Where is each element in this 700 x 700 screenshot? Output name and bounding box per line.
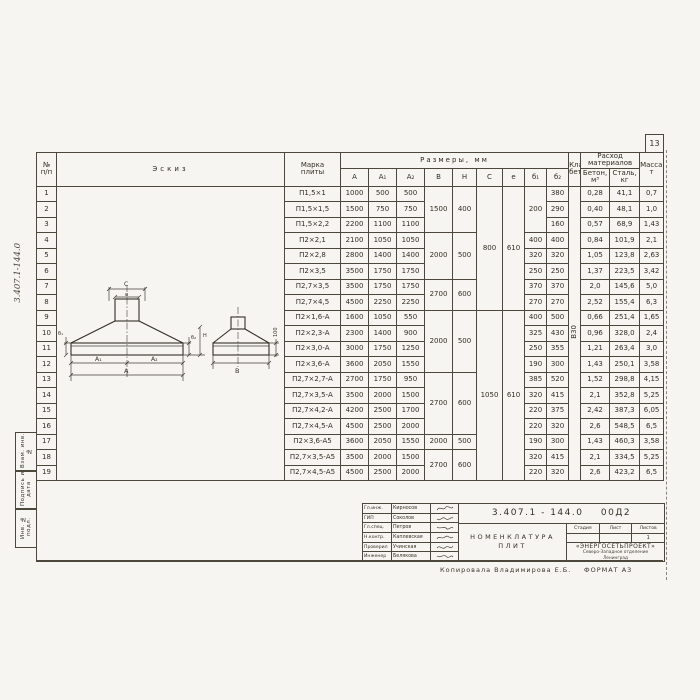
cell: 500: [453, 434, 477, 450]
cell: 1,21: [581, 341, 610, 357]
cell: П2,7×3,5: [285, 279, 341, 295]
header-row-number: №п/п: [37, 153, 57, 187]
cell: 4500: [341, 465, 369, 481]
cell: 2,0: [581, 279, 610, 295]
cell: 9: [37, 310, 57, 326]
cell: 1,52: [581, 372, 610, 388]
header-col-b2: б₂: [547, 168, 569, 186]
cell: 2250: [397, 295, 425, 311]
cell: 1500: [425, 186, 453, 233]
cell: 1400: [369, 248, 397, 264]
cell: 1750: [397, 264, 425, 280]
margin-doc-number-text: 3.407.1-144.0: [13, 243, 23, 303]
cell: П2,7×3,5-А5: [285, 450, 341, 466]
cell: 1500: [397, 388, 425, 404]
cell: 1,05: [581, 248, 610, 264]
cell: 1,43: [640, 217, 664, 233]
cell: 5,0: [640, 279, 664, 295]
cell: П2,7×4,2-А: [285, 403, 341, 419]
cell: 17: [37, 434, 57, 450]
signature-name: Соколов: [392, 514, 431, 523]
cell: 3,0: [640, 341, 664, 357]
sheet-label: Лист: [600, 524, 633, 533]
stamp-vzam-inv-label: Взам. инв. №: [20, 433, 32, 469]
cell: 500: [453, 233, 477, 280]
cell: 423,2: [610, 465, 640, 481]
cell: 370: [547, 279, 569, 295]
cell: 6,5: [640, 419, 664, 435]
stamp-inv-podl: Инв. № подл.: [15, 508, 37, 548]
sketch-cell: C e б₂ Н б₁ А₁ А₂ А В: [57, 186, 285, 481]
drawing-title: НОМЕНКЛАТУРА ПЛИТ: [459, 524, 567, 561]
cell: 3000: [341, 341, 369, 357]
cell: 300: [547, 357, 569, 373]
concrete-class-cell: В30: [569, 186, 581, 481]
cell: 6: [37, 264, 57, 280]
cell: 3500: [341, 388, 369, 404]
cell: 375: [547, 403, 569, 419]
cell: 352,8: [610, 388, 640, 404]
frame-right-line: [666, 150, 667, 580]
signature-row: ГИПСоколов: [363, 514, 458, 524]
cell: 223,5: [610, 264, 640, 280]
cell: 298,8: [610, 372, 640, 388]
cell: 3,42: [640, 264, 664, 280]
cell: 2,42: [581, 403, 610, 419]
title-block: Гл.инж.Кирносов ГИПСоколов Гл.спец.Петро…: [362, 503, 665, 562]
cell: 500: [547, 310, 569, 326]
cell: 355: [547, 341, 569, 357]
drawing-title-line2: ПЛИТ: [498, 542, 527, 552]
cell: 4: [37, 233, 57, 249]
cell: 2,1: [581, 450, 610, 466]
cell: 2500: [369, 403, 397, 419]
cell: 1,65: [640, 310, 664, 326]
cell: 1100: [369, 217, 397, 233]
cell: 1750: [369, 372, 397, 388]
cell: 430: [547, 326, 569, 342]
table-row: 1 C e б₂ Н б₁ А₁ А₂ А: [37, 186, 664, 202]
cell: 2,1: [581, 388, 610, 404]
cell: 15: [37, 403, 57, 419]
cell: 4200: [341, 403, 369, 419]
cell: 2700: [425, 372, 453, 434]
cell: П2×3,0-А: [285, 341, 341, 357]
cell: П2×3,6-А: [285, 357, 341, 373]
cell: 3,58: [640, 357, 664, 373]
cell: 415: [547, 450, 569, 466]
header-sketch: Эскиз: [57, 153, 285, 187]
page-number: 13: [645, 134, 664, 153]
cell: 370: [525, 279, 547, 295]
signature-scribble: [431, 543, 458, 552]
cell: 2,52: [581, 295, 610, 311]
cell: 1400: [369, 326, 397, 342]
cell: 1050: [397, 233, 425, 249]
cell: 610: [503, 186, 525, 310]
cell: 1,37: [581, 264, 610, 280]
cell: П2,7×2,7-А: [285, 372, 341, 388]
cell: 320: [525, 248, 547, 264]
cell: 2300: [341, 326, 369, 342]
cell: 250,1: [610, 357, 640, 373]
stage-value-row: 1: [567, 534, 664, 543]
dim-label-100: 100: [273, 327, 279, 337]
signature-scribble: [431, 514, 458, 523]
cell: 2000: [425, 434, 453, 450]
drawing-title-line1: НОМЕНКЛАТУРА: [470, 533, 555, 543]
cell: 1500: [397, 450, 425, 466]
cell: 1050: [369, 310, 397, 326]
cell: П2×3,5: [285, 264, 341, 280]
cell: 415: [547, 388, 569, 404]
dim-label-a1: А₁: [95, 356, 102, 363]
dim-label-a2: А₂: [151, 356, 158, 363]
stamp-podpis-data-label: Подпись и дата: [20, 471, 32, 507]
cell: 2: [37, 202, 57, 218]
cell: 250: [547, 264, 569, 280]
copy-note: Копировала Владимирова Е.Б.: [440, 566, 571, 574]
cell: 1600: [341, 310, 369, 326]
cell: 2700: [341, 372, 369, 388]
cell: 600: [453, 372, 477, 434]
cell: 1,43: [581, 434, 610, 450]
cell: 8: [37, 295, 57, 311]
cell: 1,43: [581, 357, 610, 373]
cell: П2,7×4,5-А: [285, 419, 341, 435]
cell: 460,3: [610, 434, 640, 450]
cell: 1550: [397, 434, 425, 450]
header-col-H: Н: [453, 168, 477, 186]
cell: 251,4: [610, 310, 640, 326]
cell: 2000: [369, 450, 397, 466]
cell: 750: [397, 202, 425, 218]
cell: 6,05: [640, 403, 664, 419]
cell: 2700: [425, 450, 453, 481]
cell: 548,5: [610, 419, 640, 435]
cell: 900: [397, 326, 425, 342]
dim-label-h: Н: [203, 333, 207, 339]
header-mark: Маркаплиты: [285, 153, 341, 187]
signature-role: Инженер: [363, 552, 392, 561]
cell: 200: [525, 186, 547, 233]
signature-name: Учинская: [392, 543, 431, 552]
signature-row: Гл.инж.Кирносов: [363, 504, 458, 514]
cell: 328,0: [610, 326, 640, 342]
cell: 2800: [341, 248, 369, 264]
cell: 0,66: [581, 310, 610, 326]
cell: 2,1: [640, 233, 664, 249]
dim-label-b1: б₁: [58, 331, 63, 337]
cell: 5,25: [640, 388, 664, 404]
cell: 3500: [341, 279, 369, 295]
slab-sketch-svg: C e б₂ Н б₁ А₁ А₂ А В: [57, 259, 285, 391]
cell: 2250: [369, 295, 397, 311]
cell: 610: [503, 310, 525, 481]
cell: 1000: [341, 186, 369, 202]
cell: 5: [37, 248, 57, 264]
cell: 3500: [341, 450, 369, 466]
format-note: ФОРМАТ А3: [584, 566, 632, 574]
header-n2: п/п: [41, 168, 53, 176]
cell: 400: [453, 186, 477, 233]
cell: 270: [547, 295, 569, 311]
cell: 385: [525, 372, 547, 388]
cell: 1050: [477, 310, 503, 481]
cell: 520: [547, 372, 569, 388]
cell: 4500: [341, 419, 369, 435]
header-col-A1: А₁: [369, 168, 397, 186]
cell: 4,15: [640, 372, 664, 388]
cell: 290: [547, 202, 569, 218]
cell: 300: [547, 434, 569, 450]
cell: 220: [525, 419, 547, 435]
cell: 13: [37, 372, 57, 388]
cell: 2000: [397, 465, 425, 481]
cell: 600: [453, 279, 477, 310]
cell: П2×3,6-А5: [285, 434, 341, 450]
header-class2: бетона: [569, 168, 581, 176]
signature-name: Кирносов: [392, 504, 431, 513]
header-col-e: е: [503, 168, 525, 186]
signature-role: ГИП: [363, 514, 392, 523]
cell: 500: [453, 310, 477, 372]
cell: 250: [525, 341, 547, 357]
cell: 2050: [369, 434, 397, 450]
cell: П1,5×2,2: [285, 217, 341, 233]
cell: 263,4: [610, 341, 640, 357]
cell: 5,25: [640, 450, 664, 466]
cell: 190: [525, 434, 547, 450]
header-consumption: Расходматериалов: [581, 153, 640, 169]
header-concrete2: м³: [591, 176, 599, 184]
header-mass: Масса,т: [640, 153, 664, 187]
stage-header-row: Стадия Лист Листов: [567, 524, 664, 534]
signature-row: Гл.спец.Петров: [363, 523, 458, 533]
stage-value: [567, 534, 600, 542]
cell: 6,3: [640, 295, 664, 311]
signature-name: Петров: [392, 523, 431, 532]
cell: 750: [369, 202, 397, 218]
cell: П2×1,6-А: [285, 310, 341, 326]
cell: П1,5×1,5: [285, 202, 341, 218]
cell: 10: [37, 326, 57, 342]
header-mass2: т: [650, 168, 654, 176]
signature-name: Белякова: [392, 552, 431, 561]
cell: 400: [525, 233, 547, 249]
cell: 3500: [341, 264, 369, 280]
cell: 1400: [397, 248, 425, 264]
cell: 190: [525, 357, 547, 373]
cell: 155,4: [610, 295, 640, 311]
cell: 1,0: [640, 202, 664, 218]
cell: 380: [547, 186, 569, 202]
cell: 2000: [397, 419, 425, 435]
cell: 101,9: [610, 233, 640, 249]
cell: 220: [525, 465, 547, 481]
signature-row: ИнженерБелякова: [363, 552, 458, 561]
cell: 68,9: [610, 217, 640, 233]
cell: 600: [453, 450, 477, 481]
header-col-A2: А₂: [397, 168, 425, 186]
cell: 14: [37, 388, 57, 404]
cell: 2700: [425, 279, 453, 310]
cell: 2100: [341, 233, 369, 249]
cell: 320: [547, 419, 569, 435]
header-steel2: кг: [621, 176, 629, 184]
cell: 1700: [397, 403, 425, 419]
cell: 0,28: [581, 186, 610, 202]
cell: 0,7: [640, 186, 664, 202]
cell: 160: [547, 217, 569, 233]
organization-stamp: «ЭНЕРГОСЕТЬПРОЕКТ» Северо-Западное отдел…: [567, 543, 664, 561]
cell: 1750: [369, 264, 397, 280]
title-block-right: 3.407.1 - 144.0 00Д2 НОМЕНКЛАТУРА ПЛИТ С…: [459, 504, 664, 561]
cell: 500: [397, 186, 425, 202]
cell: 800: [477, 186, 503, 310]
cell: 325: [525, 326, 547, 342]
margin-doc-number: 3.407.1-144.0: [13, 243, 23, 343]
dim-label-b2: б₂: [191, 335, 196, 341]
cell: 3600: [341, 357, 369, 373]
header-col-B: В: [425, 168, 453, 186]
cell: 3600: [341, 434, 369, 450]
cell: 123,8: [610, 248, 640, 264]
signature-row: ПроверилУчинская: [363, 543, 458, 553]
cell: 950: [397, 372, 425, 388]
stamp-vzam-inv: Взам. инв. №: [15, 432, 37, 472]
cell: 1750: [369, 341, 397, 357]
cell: 3: [37, 217, 57, 233]
cell: 2,4: [640, 326, 664, 342]
signature-grid: Гл.инж.Кирносов ГИПСоколов Гл.спец.Петро…: [363, 504, 459, 561]
cell: 4500: [341, 295, 369, 311]
stage-label: Стадия: [567, 524, 600, 533]
signature-role: Проверил: [363, 543, 392, 552]
cell: 2500: [369, 419, 397, 435]
cell: 1: [37, 186, 57, 202]
cell: 1550: [397, 357, 425, 373]
cell: 270: [525, 295, 547, 311]
cell: 18: [37, 450, 57, 466]
cell: 2000: [425, 310, 453, 372]
cell: 2050: [369, 357, 397, 373]
cell: 400: [525, 310, 547, 326]
scanned-drawing-sheet: { "page": { "number": "13", "copy_note":…: [0, 0, 700, 700]
header-col-A: А: [341, 168, 369, 186]
header-col-concrete: Бетон,м³: [581, 168, 610, 186]
cell: 0,57: [581, 217, 610, 233]
cell: 320: [525, 450, 547, 466]
stamp-podpis-data: Подпись и дата: [15, 470, 37, 510]
cell: 16: [37, 419, 57, 435]
dim-label-c: C: [124, 281, 128, 288]
stamp-inv-podl-label: Инв. № подл.: [20, 509, 32, 545]
cell: 41,1: [610, 186, 640, 202]
cell: 12: [37, 357, 57, 373]
signature-name: Каплевская: [392, 533, 431, 542]
header-consumption2: материалов: [588, 159, 632, 167]
dim-label-a: А: [124, 367, 129, 375]
cell: П2×2,3-А: [285, 326, 341, 342]
organization-city: Ленинград: [603, 556, 628, 561]
cell: П2×2,8: [285, 248, 341, 264]
cell: 2000: [425, 233, 453, 280]
cell: П2,7×4,5: [285, 295, 341, 311]
cell: 0,40: [581, 202, 610, 218]
cell: 320: [547, 465, 569, 481]
header-col-C: С: [477, 168, 503, 186]
cell: 19: [37, 465, 57, 481]
cell: 220: [525, 403, 547, 419]
cell: 1050: [369, 233, 397, 249]
header-col-b1: б₁: [525, 168, 547, 186]
signature-role: Гл.спец.: [363, 523, 392, 532]
cell: 11: [37, 341, 57, 357]
cell: 2200: [341, 217, 369, 233]
cell: 6,5: [640, 465, 664, 481]
document-number: 3.407.1 - 144.0 00Д2: [459, 504, 664, 524]
header-mark2: плиты: [301, 168, 324, 176]
cell: 2,6: [581, 465, 610, 481]
cell: 2,6: [581, 419, 610, 435]
cell: 1500: [341, 202, 369, 218]
signature-scribble: [431, 533, 458, 542]
cell: 1750: [369, 279, 397, 295]
concrete-class-value: В30: [571, 325, 578, 339]
cell: 500: [369, 186, 397, 202]
sheets-label: Листов: [632, 524, 664, 533]
cell: 1250: [397, 341, 425, 357]
cell: 400: [547, 233, 569, 249]
signature-scribble: [431, 523, 458, 532]
cell: П2×2,1: [285, 233, 341, 249]
cell: П2,7×4,5-А5: [285, 465, 341, 481]
cell: 48,1: [610, 202, 640, 218]
signature-scribble: [431, 552, 458, 561]
sheet-value: [600, 534, 633, 542]
nomenclature-table: №п/п Эскиз Маркаплиты Размеры, мм Классб…: [36, 152, 664, 481]
sheets-value: 1: [632, 534, 664, 542]
signature-row: Н.контр.Каплевская: [363, 533, 458, 543]
cell: 145,6: [610, 279, 640, 295]
cell: 0,96: [581, 326, 610, 342]
cell: 1750: [397, 279, 425, 295]
cell: 1100: [397, 217, 425, 233]
cell: 3,58: [640, 434, 664, 450]
cell: П1,5×1: [285, 186, 341, 202]
cell: 334,5: [610, 450, 640, 466]
cell: 7: [37, 279, 57, 295]
cell: 2500: [369, 465, 397, 481]
header-col-steel: Сталь,кг: [610, 168, 640, 186]
cell: 320: [547, 248, 569, 264]
cell: 2,63: [640, 248, 664, 264]
header-concrete-class: Классбетона: [569, 153, 581, 187]
cell: 250: [525, 264, 547, 280]
cell: 320: [525, 388, 547, 404]
cell: П2,7×3,5-А: [285, 388, 341, 404]
header-dimensions: Размеры, мм: [341, 153, 569, 169]
cell: 2000: [369, 388, 397, 404]
signature-scribble: [431, 504, 458, 513]
cell: 550: [397, 310, 425, 326]
signature-role: Н.контр.: [363, 533, 392, 542]
dim-label-b: В: [235, 367, 239, 375]
cell: 0,84: [581, 233, 610, 249]
signature-role: Гл.инж.: [363, 504, 392, 513]
cell: 387,3: [610, 403, 640, 419]
